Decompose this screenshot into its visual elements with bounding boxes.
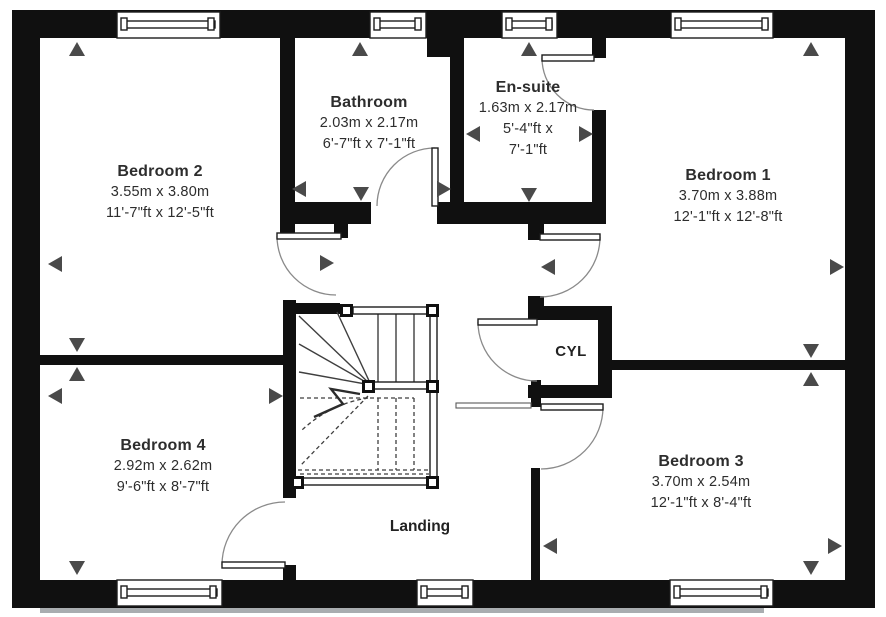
arrow-right-icon xyxy=(269,388,283,404)
door-leaf xyxy=(540,234,600,240)
arrow-up-icon xyxy=(352,42,368,56)
landing-label: Landing xyxy=(358,518,482,536)
room-label-bedroom4: Bedroom 4 2.92m x 2.62m 9'-6"ft x 8'-7"f… xyxy=(40,435,286,498)
room-dimensions-imperial: 12'-1"ft x 8'-4"ft xyxy=(578,493,824,514)
door-leaf xyxy=(277,233,341,239)
window xyxy=(670,580,773,606)
wall-shadow xyxy=(40,608,764,613)
room-name: Bedroom 3 xyxy=(578,451,824,472)
window xyxy=(370,12,426,38)
room-name: Bedroom 4 xyxy=(40,435,286,456)
room-name: Bedroom 2 xyxy=(38,161,282,182)
arrow-down-icon xyxy=(353,187,369,201)
arrow-down-icon xyxy=(803,344,819,358)
arrow-up-icon xyxy=(521,42,537,56)
room-label-bathroom: Bathroom 2.03m x 2.17m 6'-7"ft x 7'-1"ft xyxy=(286,92,452,155)
newel-posts xyxy=(291,304,439,489)
door-bedroom4 xyxy=(222,502,285,568)
arrow-right-icon xyxy=(437,181,451,197)
door-leaf xyxy=(541,404,603,410)
room-dimensions-imperial: 12'-1"ft x 12'-8"ft xyxy=(606,207,850,228)
arrow-down-icon xyxy=(69,561,85,575)
room-dimensions-metric: 3.70m x 3.88m xyxy=(606,186,850,207)
stair-rails xyxy=(303,307,437,485)
room-dimensions-metric: 3.55m x 3.80m xyxy=(38,182,282,203)
room-label-bedroom1: Bedroom 1 3.70m x 3.88m 12'-1"ft x 12'-8… xyxy=(606,165,850,228)
arrow-up-icon xyxy=(803,372,819,386)
room-label-ensuite: En-suite 1.63m x 2.17m 5'-4"ft x 7'-1"ft xyxy=(453,77,603,161)
door-swing-arc xyxy=(377,148,435,206)
room-dimensions-imperial: 6'-7"ft x 7'-1"ft xyxy=(286,134,452,155)
arrow-left-icon xyxy=(48,256,62,272)
arrow-up-icon xyxy=(803,42,819,56)
arrow-up-icon xyxy=(69,42,85,56)
arrow-right-icon xyxy=(830,259,844,275)
arrow-right-icon xyxy=(320,255,334,271)
room-name: Bedroom 1 xyxy=(606,165,850,186)
window xyxy=(417,580,473,606)
door-swing-arc xyxy=(222,502,285,565)
room-name: Bathroom xyxy=(286,92,452,113)
window xyxy=(117,580,222,606)
window xyxy=(502,12,557,38)
room-dimensions-imperial: 7'-1"ft xyxy=(453,140,603,161)
arrow-right-icon xyxy=(828,538,842,554)
staircase xyxy=(291,304,439,489)
room-label-bedroom3: Bedroom 3 3.70m x 2.54m 12'-1"ft x 8'-4"… xyxy=(578,451,824,514)
door-leaf xyxy=(432,148,438,206)
arrow-up-icon xyxy=(69,367,85,381)
room-dimensions-imperial: 5'-4"ft x xyxy=(453,119,603,140)
arrow-left-icon xyxy=(543,538,557,554)
room-dimensions-metric: 2.92m x 2.62m xyxy=(40,456,286,477)
room-dimensions-imperial: 11'-7"ft x 12'-5"ft xyxy=(38,203,282,224)
room-dimensions-imperial: 9'-6"ft x 8'-7"ft xyxy=(40,477,286,498)
stair-break-line xyxy=(314,389,360,417)
cylinder-cupboard-label: CYL xyxy=(542,343,600,360)
floor-plan: Bedroom 2 3.55m x 3.80m 11'-7"ft x 12'-5… xyxy=(0,0,886,617)
arrow-left-icon xyxy=(541,259,555,275)
room-name: En-suite xyxy=(453,77,603,98)
room-dimensions-metric: 3.70m x 2.54m xyxy=(578,472,824,493)
door-leaf xyxy=(542,55,594,61)
arrow-down-icon xyxy=(69,338,85,352)
room-label-bedroom2: Bedroom 2 3.55m x 3.80m 11'-7"ft x 12'-5… xyxy=(38,161,282,224)
window xyxy=(671,12,773,38)
door-leaf xyxy=(478,319,537,325)
room-dimensions-metric: 1.63m x 2.17m xyxy=(453,98,603,119)
door-swing-arc xyxy=(478,322,537,381)
window xyxy=(117,12,220,38)
arrow-left-icon xyxy=(48,388,62,404)
door-leaf xyxy=(222,562,285,568)
room-dimensions-metric: 2.03m x 2.17m xyxy=(286,113,452,134)
arrow-down-icon xyxy=(803,561,819,575)
door-cylinder-cupboard xyxy=(478,319,537,381)
arrow-down-icon xyxy=(521,188,537,202)
landing-partition-line xyxy=(456,403,531,408)
door-bathroom xyxy=(377,148,438,206)
